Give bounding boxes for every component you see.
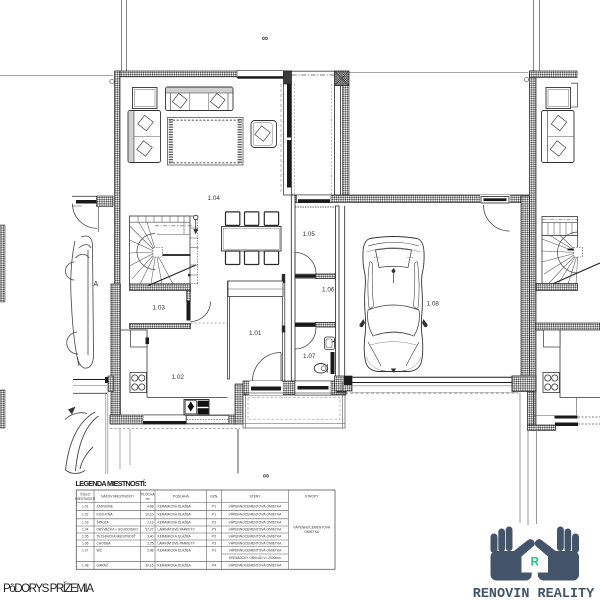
svg-text:KERAMICKÁ DLAŽBA: KERAMICKÁ DLAŽBA <box>158 504 192 509</box>
svg-text:1.05: 1.05 <box>82 535 89 539</box>
svg-text:STROPY: STROPY <box>305 495 319 499</box>
svg-text:GARÁŽ: GARÁŽ <box>97 563 108 568</box>
svg-text:VÁPENNOCEMENTOVÁ OMIETKA: VÁPENNOCEMENTOVÁ OMIETKA <box>229 564 282 568</box>
svg-text:OMIETKA: OMIETKA <box>304 530 320 534</box>
svg-text:VÁPENNOCEMENTOVÁ: VÁPENNOCEMENTOVÁ <box>293 526 331 530</box>
svg-text:ŠPAJZA: ŠPAJZA <box>97 520 110 525</box>
svg-text:30,16: 30,16 <box>145 564 153 568</box>
svg-text:ZÁDVERIE: ZÁDVERIE <box>97 505 114 509</box>
svg-text:VÁPENNOCEMENTOVÁ OMIETKA: VÁPENNOCEMENTOVÁ OMIETKA <box>229 541 282 545</box>
svg-text:R: R <box>531 557 540 569</box>
svg-text:VÁPENNOCEMENTOVÁ OMIETKA: VÁPENNOCEMENTOVÁ OMIETKA <box>229 535 282 539</box>
svg-text:37,27: 37,27 <box>145 528 153 532</box>
svg-text:1.03: 1.03 <box>82 521 89 525</box>
svg-text:STENY: STENY <box>250 495 262 499</box>
svg-text:1.02: 1.02 <box>172 374 185 381</box>
svg-text:KUCHYŇA: KUCHYŇA <box>97 513 114 517</box>
svg-text:1.02: 1.02 <box>82 513 89 517</box>
svg-text:TECHNICKÁ MIESTNOSŤ: TECHNICKÁ MIESTNOSŤ <box>97 534 136 539</box>
svg-text:1.07: 1.07 <box>303 353 316 360</box>
svg-text:KERAMICKÁ DLAŽBA: KERAMICKÁ DLAŽBA <box>158 563 192 568</box>
svg-text:VÁPENNOCEMENTOVÁ OMIETKA: VÁPENNOCEMENTOVÁ OMIETKA <box>229 505 282 509</box>
svg-text:OBÝVAČKA + SCHODISKO: OBÝVAČKA + SCHODISKO <box>97 527 139 532</box>
svg-text:P2: P2 <box>212 535 216 539</box>
svg-text:P1: P1 <box>212 513 216 517</box>
svg-text:∞: ∞ <box>262 33 269 43</box>
svg-text:1.04: 1.04 <box>208 195 221 202</box>
svg-text:KERAMICKÁ DLAŽBA: KERAMICKÁ DLAŽBA <box>158 512 192 517</box>
svg-text:NÁZOV MIESTNOSTI: NÁZOV MIESTNOSTI <box>101 495 134 499</box>
svg-text:ČÍSLO: ČÍSLO <box>80 492 90 497</box>
svg-text:PôDORYS PRÍZEMIA: PôDORYS PRÍZEMIA <box>3 582 94 595</box>
svg-text:P2: P2 <box>212 521 216 525</box>
svg-text:1.05: 1.05 <box>303 231 316 238</box>
svg-text:1.06: 1.06 <box>82 541 89 545</box>
svg-text:1.08: 1.08 <box>427 301 440 308</box>
svg-text:1.01: 1.01 <box>82 505 89 509</box>
svg-text:P1: P1 <box>212 505 216 509</box>
svg-text:P3: P3 <box>212 541 216 545</box>
svg-text:P3: P3 <box>212 528 216 532</box>
svg-text:3,40: 3,40 <box>147 535 154 539</box>
svg-text:1.06: 1.06 <box>322 287 335 294</box>
svg-text:P4: P4 <box>212 564 216 568</box>
svg-text:4,98: 4,98 <box>147 505 154 509</box>
svg-text:LAMINÁTOVÉ PARKETY: LAMINÁTOVÉ PARKETY <box>158 540 196 545</box>
svg-text:CHODBA: CHODBA <box>97 541 112 545</box>
svg-text:RENOVIN REALITY: RENOVIN REALITY <box>473 587 595 600</box>
svg-text:P1: P1 <box>212 549 216 553</box>
svg-text:KERAMICKÁ DLAŽBA: KERAMICKÁ DLAŽBA <box>158 548 192 553</box>
svg-text:1.03: 1.03 <box>153 305 166 312</box>
svg-text:OZN.: OZN. <box>210 495 218 499</box>
svg-text:2,48: 2,48 <box>147 549 154 553</box>
svg-text:KERAMICKÝ OBKLAD v= 2000mm: KERAMICKÝ OBKLAD v= 2000mm <box>229 556 281 560</box>
svg-text:VÁPENNOCEMENTOVÁ OMIETKA: VÁPENNOCEMENTOVÁ OMIETKA <box>229 549 282 553</box>
svg-text:VÁPENNOCEMENTOVÁ OMIETKA: VÁPENNOCEMENTOVÁ OMIETKA <box>229 521 282 525</box>
svg-text:KERAMICKÁ DLAŽBA: KERAMICKÁ DLAŽBA <box>158 534 192 539</box>
svg-text:KERAMICKÁ DLAŽBA: KERAMICKÁ DLAŽBA <box>158 520 192 525</box>
svg-text:WC: WC <box>97 549 103 553</box>
svg-text:∞: ∞ <box>263 471 270 481</box>
svg-text:1.08: 1.08 <box>82 564 89 568</box>
svg-text:2,25: 2,25 <box>147 541 154 545</box>
svg-text:1.04: 1.04 <box>82 528 89 532</box>
svg-text:LEGENDA MIESTNOSTÍ:: LEGENDA MIESTNOSTÍ: <box>76 479 147 488</box>
svg-text:2,19: 2,19 <box>147 521 154 525</box>
svg-text:1.07: 1.07 <box>82 549 89 553</box>
svg-text:10,10: 10,10 <box>145 513 153 517</box>
svg-text:A: A <box>94 281 99 288</box>
svg-text:VÁPENNOCEMENTOVÁ OMIETKA: VÁPENNOCEMENTOVÁ OMIETKA <box>229 528 282 532</box>
svg-text:VÁPENNOCEMENTOVÁ OMIETKA: VÁPENNOCEMENTOVÁ OMIETKA <box>229 513 282 517</box>
svg-text:PODLAHA: PODLAHA <box>173 495 190 499</box>
svg-text:MIESTNOSTI: MIESTNOSTI <box>75 497 95 501</box>
svg-text:1.01: 1.01 <box>249 330 262 337</box>
svg-text:LAMINÁTOVÉ PARKETY: LAMINÁTOVÉ PARKETY <box>158 527 196 532</box>
